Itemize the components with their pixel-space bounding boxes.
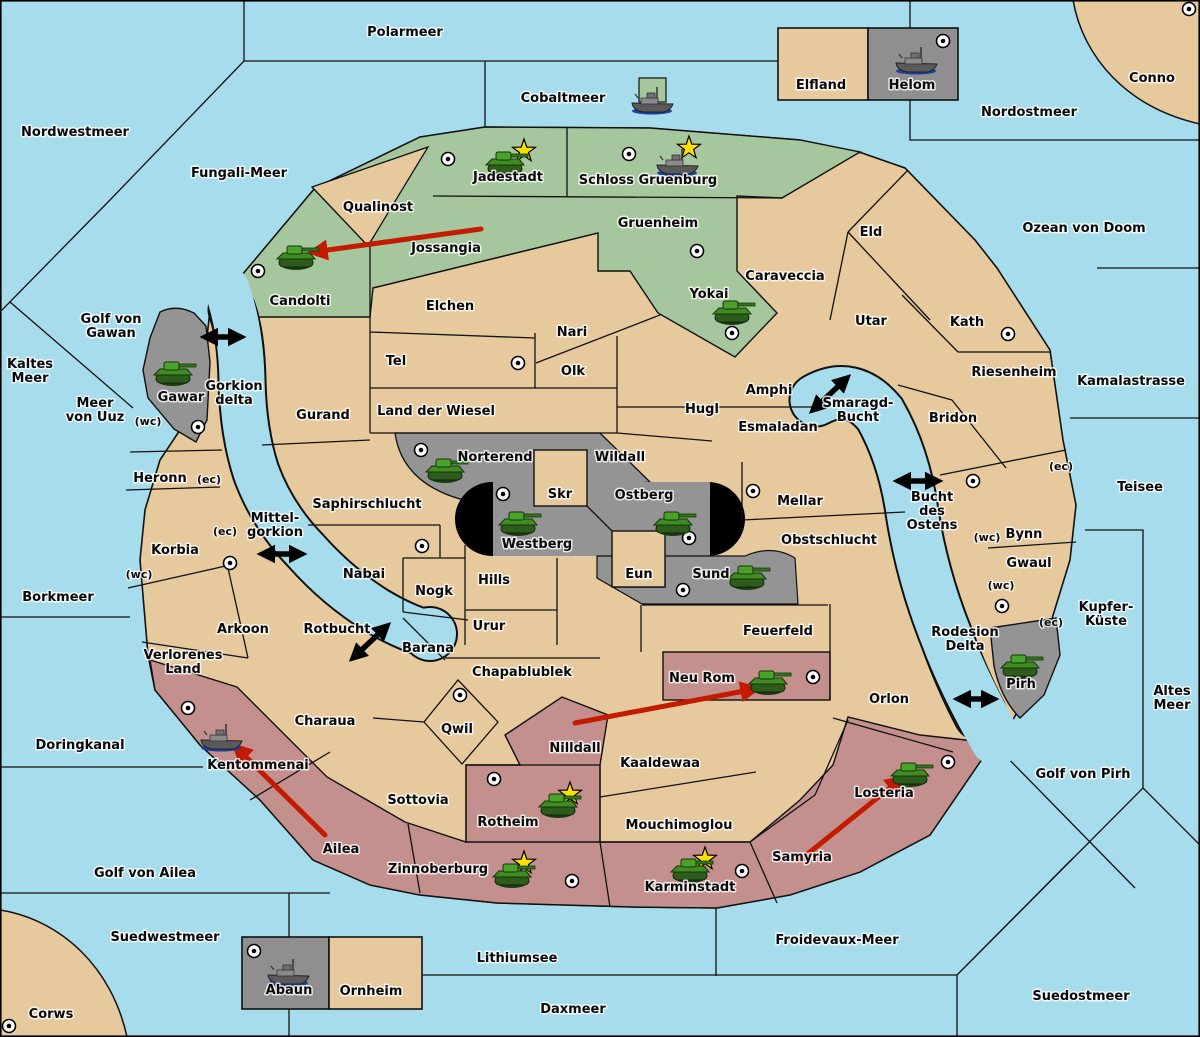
territory-label-eun[interactable]: Eun bbox=[625, 567, 652, 582]
territory-label-urur[interactable]: Urur bbox=[473, 619, 506, 634]
supply-center-rotheim bbox=[488, 773, 501, 786]
supply-center-bridon bbox=[967, 475, 980, 488]
sea-label-kaltes-meer[interactable]: KaltesMeer bbox=[7, 357, 53, 386]
territory-label-bridon[interactable]: Bridon bbox=[929, 411, 977, 426]
supply-center-neu-rom bbox=[807, 671, 820, 684]
territory-label-korbia[interactable]: Korbia bbox=[151, 543, 199, 558]
sea-label-froidevaux-meer[interactable]: Froidevaux-Meer bbox=[775, 933, 899, 948]
territory-label-ornheim[interactable]: Ornheim bbox=[340, 984, 403, 999]
supply-center-abaun bbox=[248, 945, 261, 958]
supply-center-gruenheim bbox=[691, 245, 704, 258]
territory-label-hugl[interactable]: Hugl bbox=[685, 402, 719, 417]
sea-label-suedwestmeer[interactable]: Suedwestmeer bbox=[110, 930, 220, 945]
territory-label-chapablublek[interactable]: Chapablublek bbox=[472, 665, 572, 680]
territory-label-nabai[interactable]: Nabai bbox=[343, 567, 385, 582]
coast-label-wc-6: (wc) bbox=[988, 579, 1015, 592]
territory-label-sund[interactable]: Sund bbox=[692, 567, 729, 582]
coast-label-wc-5: (wc) bbox=[974, 531, 1001, 544]
supply-center-helom bbox=[937, 35, 950, 48]
territory-label-qwil[interactable]: Qwil bbox=[441, 722, 473, 737]
territory-label-utar[interactable]: Utar bbox=[855, 314, 888, 329]
territory-label-qualinost[interactable]: Qualinost bbox=[343, 200, 413, 215]
territory-label-zinnoberburg[interactable]: Zinnoberburg bbox=[388, 862, 488, 877]
territory-label-pirh[interactable]: Pirh bbox=[1006, 677, 1036, 692]
sea-label-conno[interactable]: Conno bbox=[1129, 71, 1175, 86]
supply-center-mellar bbox=[747, 485, 760, 498]
territory-label-orlon[interactable]: Orlon bbox=[869, 692, 909, 707]
territory-label-heronn[interactable]: Heronn bbox=[133, 471, 187, 486]
territory-label-tel[interactable]: Tel bbox=[386, 354, 406, 369]
territory-label-caraveccia[interactable]: Caraveccia bbox=[745, 269, 824, 284]
territory-label-feuerfeld[interactable]: Feuerfeld bbox=[743, 624, 813, 639]
sea-label-nordostmeer[interactable]: Nordostmeer bbox=[981, 105, 1078, 120]
territory-label-skr[interactable]: Skr bbox=[548, 487, 573, 502]
sea-label-rotbucht[interactable]: Rotbucht bbox=[304, 622, 371, 637]
territory-label-ostberg[interactable]: Ostberg bbox=[615, 488, 674, 503]
sea-label-kupfer-k-ste[interactable]: Kupfer-Küste bbox=[1079, 600, 1134, 629]
territory-label-kaaldewaa[interactable]: Kaaldewaa bbox=[620, 756, 700, 771]
territory-label-neu-rom[interactable]: Neu Rom bbox=[669, 671, 735, 686]
territory-label-hills[interactable]: Hills bbox=[478, 573, 510, 588]
supply-center-candolti bbox=[252, 265, 265, 278]
supply-center-sund bbox=[677, 584, 690, 597]
sea-label-teisee[interactable]: Teisee bbox=[1117, 480, 1163, 495]
territory-label-barana[interactable]: Barana bbox=[402, 641, 454, 656]
supply-center-kath bbox=[1002, 328, 1015, 341]
coast-label-ec-1: (ec) bbox=[197, 473, 221, 486]
sea-label-golf-von-ailea[interactable]: Golf von Ailea bbox=[94, 866, 196, 881]
sea-label-doringkanal[interactable]: Doringkanal bbox=[35, 738, 124, 753]
territory-label-kath[interactable]: Kath bbox=[950, 315, 984, 330]
territory-label-helom[interactable]: Helom bbox=[889, 78, 936, 93]
supply-center-jadestadt bbox=[442, 153, 455, 166]
supply-center-yokai bbox=[726, 327, 739, 340]
territory-label-wildall[interactable]: Wildall bbox=[595, 450, 645, 465]
supply-center-zinnoberburg bbox=[566, 875, 579, 888]
sea-label-golf-von-gawan[interactable]: Golf vonGawan bbox=[81, 312, 142, 341]
territory-label-jadestadt[interactable]: Jadestadt bbox=[472, 170, 543, 185]
territory-label-eld[interactable]: Eld bbox=[860, 225, 883, 240]
supply-center-tel bbox=[512, 357, 525, 370]
territory-label-elfland[interactable]: Elfland bbox=[796, 78, 846, 93]
territory-label-riesenheim[interactable]: Riesenheim bbox=[971, 365, 1056, 380]
supply-center-westberg bbox=[497, 488, 510, 501]
supply-center-norterend bbox=[415, 444, 428, 457]
sea-label-nordwestmeer[interactable]: Nordwestmeer bbox=[21, 125, 129, 140]
sea-label-golf-von-pirh[interactable]: Golf von Pirh bbox=[1035, 767, 1130, 782]
sea-label-ozean-von-doom[interactable]: Ozean von Doom bbox=[1022, 221, 1145, 236]
territory-label-arkoon[interactable]: Arkoon bbox=[217, 622, 269, 637]
supply-center-hills bbox=[416, 540, 429, 553]
territory-label-bynn[interactable]: Bynn bbox=[1006, 527, 1043, 542]
territory-label-nilldall[interactable]: Nilldall bbox=[549, 741, 600, 756]
supply-center-schloss-gruenburg bbox=[623, 148, 636, 161]
territory-label-rotheim[interactable]: Rotheim bbox=[477, 815, 538, 830]
supply-center-corws bbox=[3, 1020, 16, 1033]
sea-label-mittel-gorkion[interactable]: Mittel-gorkion bbox=[247, 511, 303, 540]
territory-label-nari[interactable]: Nari bbox=[557, 325, 588, 340]
coast-label-ec-7: (ec) bbox=[1039, 616, 1063, 629]
territory-label-obstschlucht[interactable]: Obstschlucht bbox=[781, 533, 877, 548]
territory-label-land-der-wiesel[interactable]: Land der Wiesel bbox=[377, 404, 495, 419]
sea-label-suedostmeer[interactable]: Suedostmeer bbox=[1032, 989, 1130, 1004]
territory-label-yokai[interactable]: Yokai bbox=[688, 287, 728, 302]
supply-center-gawar bbox=[192, 421, 205, 434]
territory-label-abaun[interactable]: Abaun bbox=[266, 983, 313, 998]
territory-label-samyria[interactable]: Samyria bbox=[772, 850, 832, 865]
supply-center-losteria bbox=[942, 756, 955, 769]
sea-label-borkmeer[interactable]: Borkmeer bbox=[22, 590, 94, 605]
coast-label-wc-0: (wc) bbox=[135, 415, 162, 428]
territory-label-gawar[interactable]: Gawar bbox=[158, 390, 205, 405]
territory-label-olk[interactable]: Olk bbox=[561, 364, 586, 379]
supply-center-karminstadt bbox=[736, 865, 749, 878]
supply-center-pirh bbox=[996, 600, 1009, 613]
territory-label-norterend[interactable]: Norterend bbox=[457, 450, 532, 465]
territory-label-mellar[interactable]: Mellar bbox=[777, 494, 823, 509]
coast-label-ec-2: (ec) bbox=[213, 525, 237, 538]
supply-center-korbia bbox=[224, 557, 237, 570]
territory-label-charaua[interactable]: Charaua bbox=[295, 714, 356, 729]
sea-label-corws[interactable]: Corws bbox=[29, 1007, 74, 1022]
coast-label-ec-4: (ec) bbox=[1049, 460, 1073, 473]
territory-label-westberg[interactable]: Westberg bbox=[502, 537, 572, 552]
sea-label-daxmeer[interactable]: Daxmeer bbox=[540, 1002, 606, 1017]
territory-label-saphirschlucht[interactable]: Saphirschlucht bbox=[312, 497, 421, 512]
territory-label-schloss-gruenburg[interactable]: Schloss Gruenburg bbox=[579, 173, 717, 188]
game-map: PolarmeerCobaltmeerNordostmeerConnoNordw… bbox=[0, 0, 1200, 1037]
territory-label-mouchimoglou[interactable]: Mouchimoglou bbox=[626, 818, 733, 833]
territory-label-esmaladan[interactable]: Esmaladan bbox=[738, 420, 818, 435]
territory-label-ailea[interactable]: Ailea bbox=[323, 842, 360, 857]
territory-label-kentommenai[interactable]: Kentommenai bbox=[207, 758, 308, 773]
territory-label-gurand[interactable]: Gurand bbox=[296, 408, 350, 423]
territory-label-nogk[interactable]: Nogk bbox=[415, 584, 453, 599]
territory-label-karminstadt[interactable]: Karminstadt bbox=[645, 880, 736, 895]
sea-label-kamalastrasse[interactable]: Kamalastrasse bbox=[1077, 374, 1185, 389]
territory-label-jossangia[interactable]: Jossangia bbox=[410, 241, 481, 256]
supply-center-conno bbox=[1183, 3, 1196, 16]
sea-label-lithiumsee[interactable]: Lithiumsee bbox=[477, 951, 558, 966]
territory-label-gwaul[interactable]: Gwaul bbox=[1006, 556, 1051, 571]
territory-label-gruenheim[interactable]: Gruenheim bbox=[618, 216, 698, 231]
map-canvas: PolarmeerCobaltmeerNordostmeerConnoNordw… bbox=[0, 0, 1200, 1037]
territory-label-amphi[interactable]: Amphi bbox=[746, 383, 793, 398]
coast-label-wc-3: (wc) bbox=[126, 568, 153, 581]
territory-label-candolti[interactable]: Candolti bbox=[270, 294, 331, 309]
supply-center-kentommenai bbox=[182, 702, 195, 715]
territory-label-sottovia[interactable]: Sottovia bbox=[387, 793, 448, 808]
supply-center-qwil bbox=[454, 689, 467, 702]
territory-label-elchen[interactable]: Elchen bbox=[426, 299, 474, 314]
territory-label-losteria[interactable]: Losteria bbox=[854, 786, 914, 801]
sea-label-cobaltmeer[interactable]: Cobaltmeer bbox=[521, 91, 606, 106]
sea-label-fungali-meer[interactable]: Fungali-Meer bbox=[191, 166, 288, 181]
sea-label-polarmeer[interactable]: Polarmeer bbox=[367, 25, 443, 40]
sea-label-altes-meer[interactable]: AltesMeer bbox=[1153, 684, 1191, 713]
